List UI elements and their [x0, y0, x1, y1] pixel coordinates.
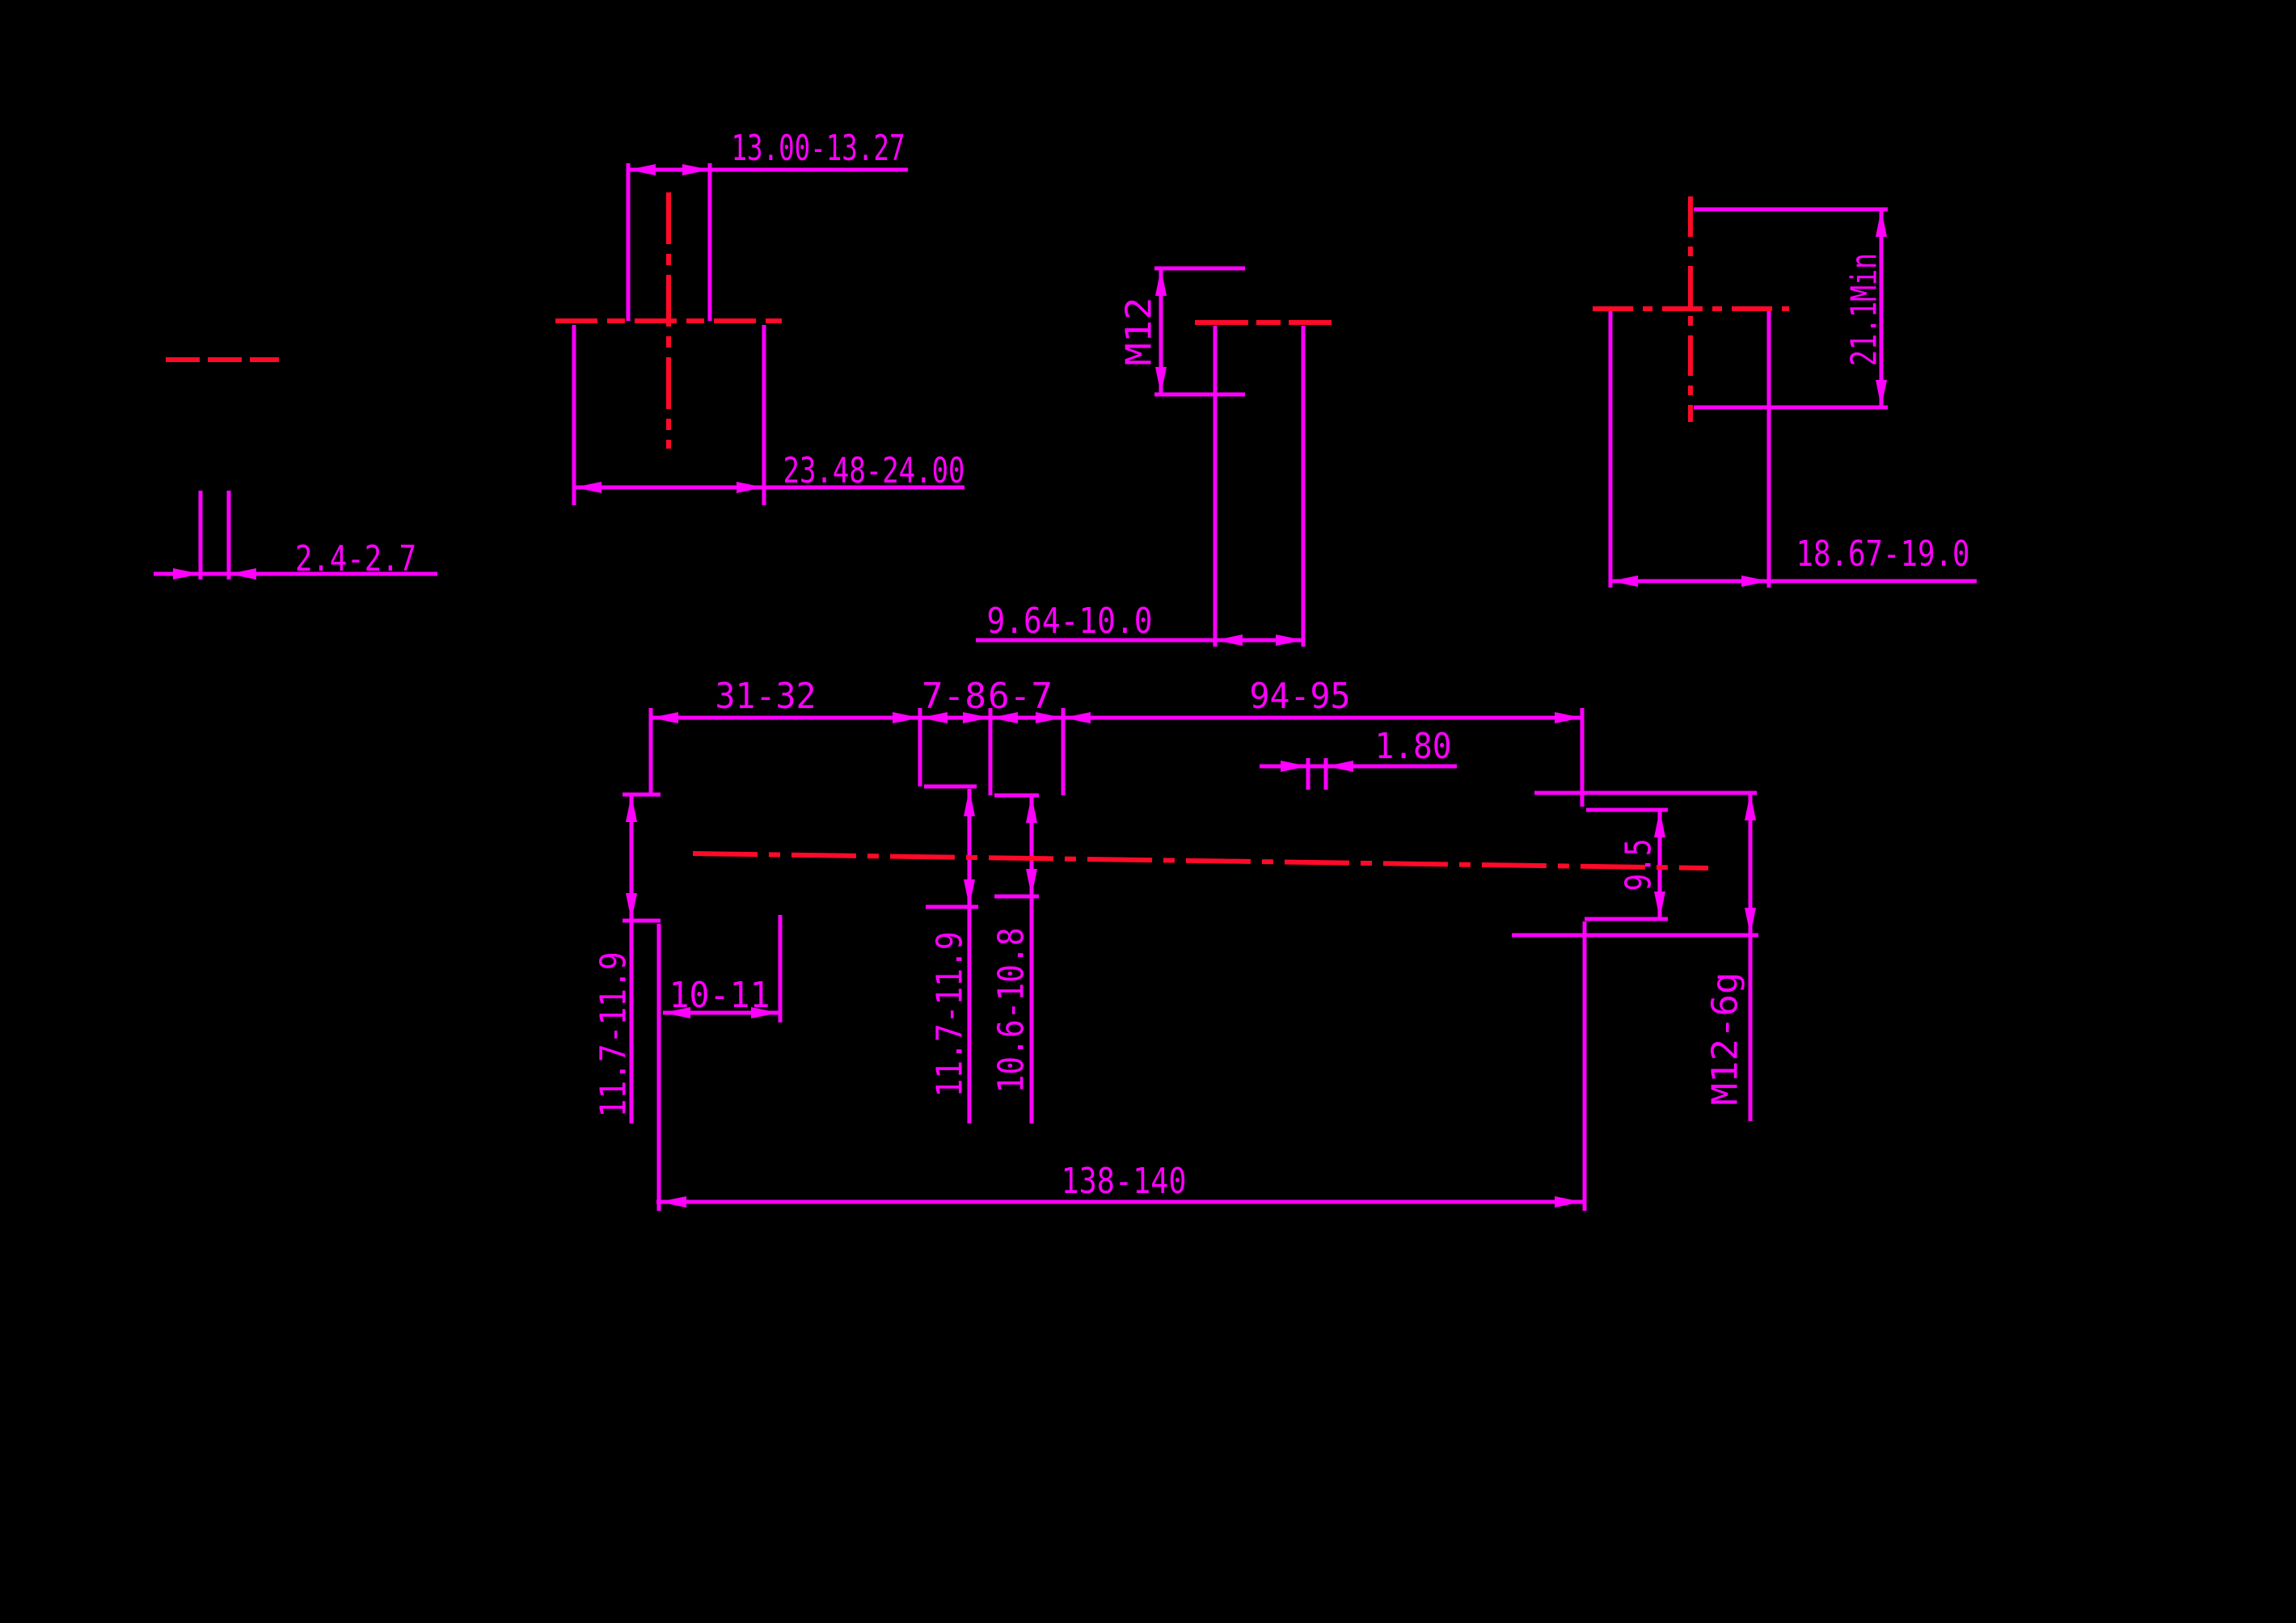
dim-text-mid-height-2: 10.6-10.8: [990, 928, 1032, 1094]
dim-text-overall-length: 138-140: [1061, 1161, 1187, 1202]
dim-text-seg1: 31-32: [715, 676, 817, 717]
dim-text-base-width: 23.48-24.00: [783, 450, 965, 491]
dim-text-thread-callout: M12: [1118, 297, 1159, 366]
dim-text-gap: 1.80: [1375, 726, 1452, 767]
dim-text-slot-length: 10-11: [669, 975, 770, 1016]
dim-text-end-diameter: 9.5: [1618, 839, 1659, 892]
dim-text-column-width: 9.64-10.0: [987, 601, 1153, 642]
drawing-background: [0, 0, 2296, 1623]
dim-text-min-height: 21.1Min: [1843, 253, 1884, 366]
drawing-canvas: 2.4-2.713.00-13.2723.48-24.00M129.64-10.…: [0, 0, 2296, 1623]
dim-text-left-height: 11.7-11.9: [593, 952, 634, 1118]
dim-text-nut-width: 18.67-19.0: [1796, 533, 1970, 575]
dim-text-seg2: 7-8: [922, 676, 986, 717]
dim-text-seg3: 6-7: [988, 676, 1053, 717]
dim-text-thread-spec: M12-6g: [1704, 972, 1745, 1106]
dim-text-thickness: 2.4-2.7: [295, 538, 416, 580]
dim-text-stud-width: 13.00-13.27: [732, 128, 905, 169]
cad-viewport: 2.4-2.713.00-13.2723.48-24.00M129.64-10.…: [0, 0, 2296, 1623]
dim-text-seg4: 94-95: [1250, 676, 1351, 717]
dim-text-mid-height: 11.7-11.9: [929, 932, 970, 1098]
